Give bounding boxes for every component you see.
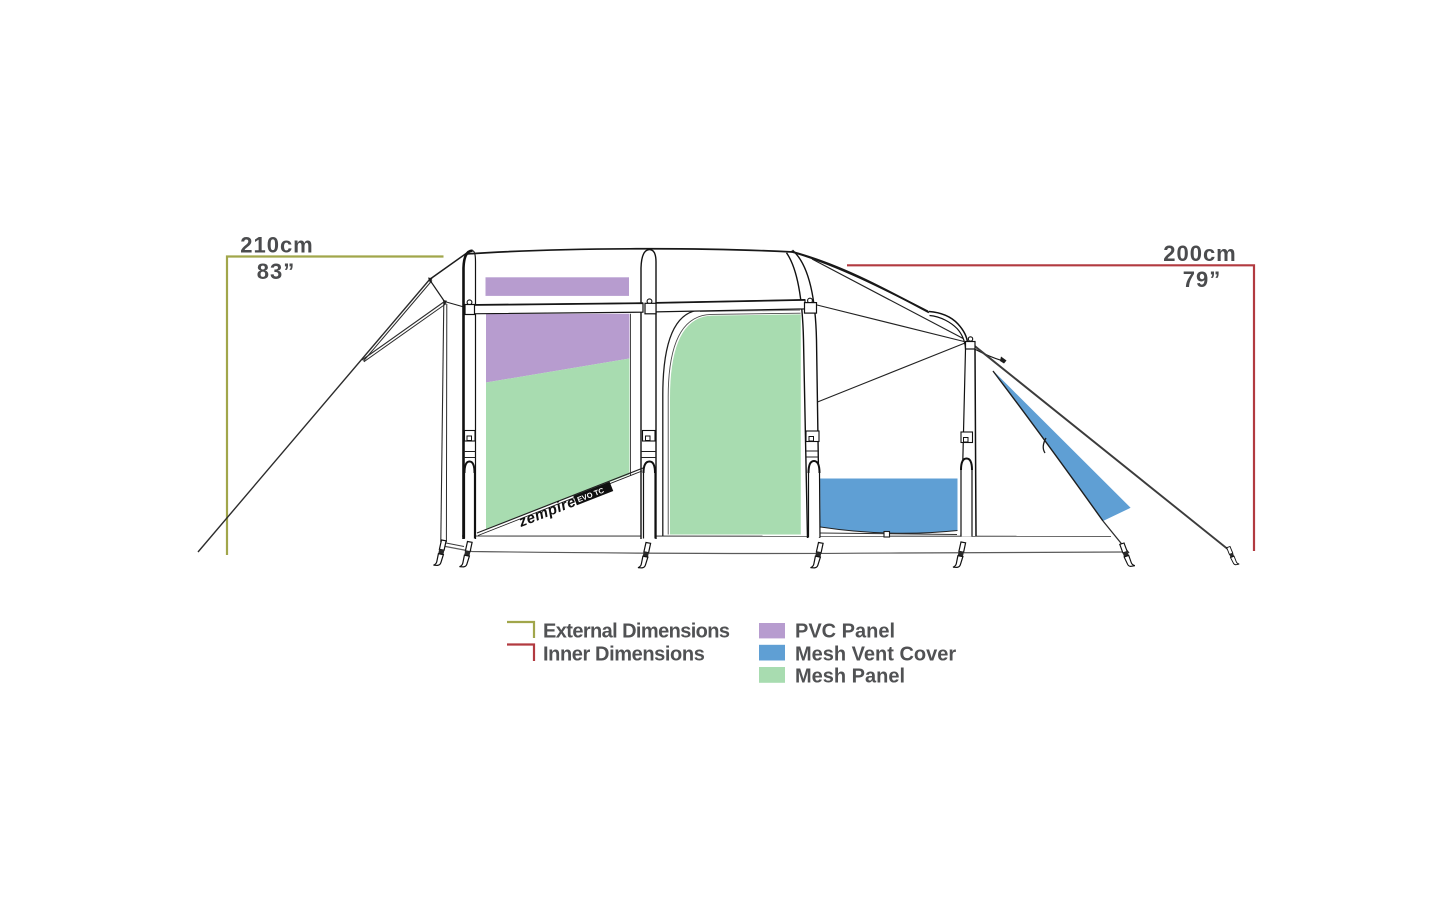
svg-text:79”: 79”	[1183, 267, 1221, 292]
svg-text:PVC Panel: PVC Panel	[795, 621, 895, 643]
svg-text:Mesh Vent Cover: Mesh Vent Cover	[795, 644, 956, 666]
svg-text:External Dimensions: External Dimensions	[543, 621, 730, 643]
svg-text:200cm: 200cm	[1163, 241, 1237, 266]
svg-text:Mesh Panel: Mesh Panel	[795, 666, 905, 688]
svg-text:210cm: 210cm	[240, 233, 314, 258]
svg-text:83”: 83”	[257, 259, 295, 284]
svg-text:Inner Dimensions: Inner Dimensions	[543, 644, 705, 666]
